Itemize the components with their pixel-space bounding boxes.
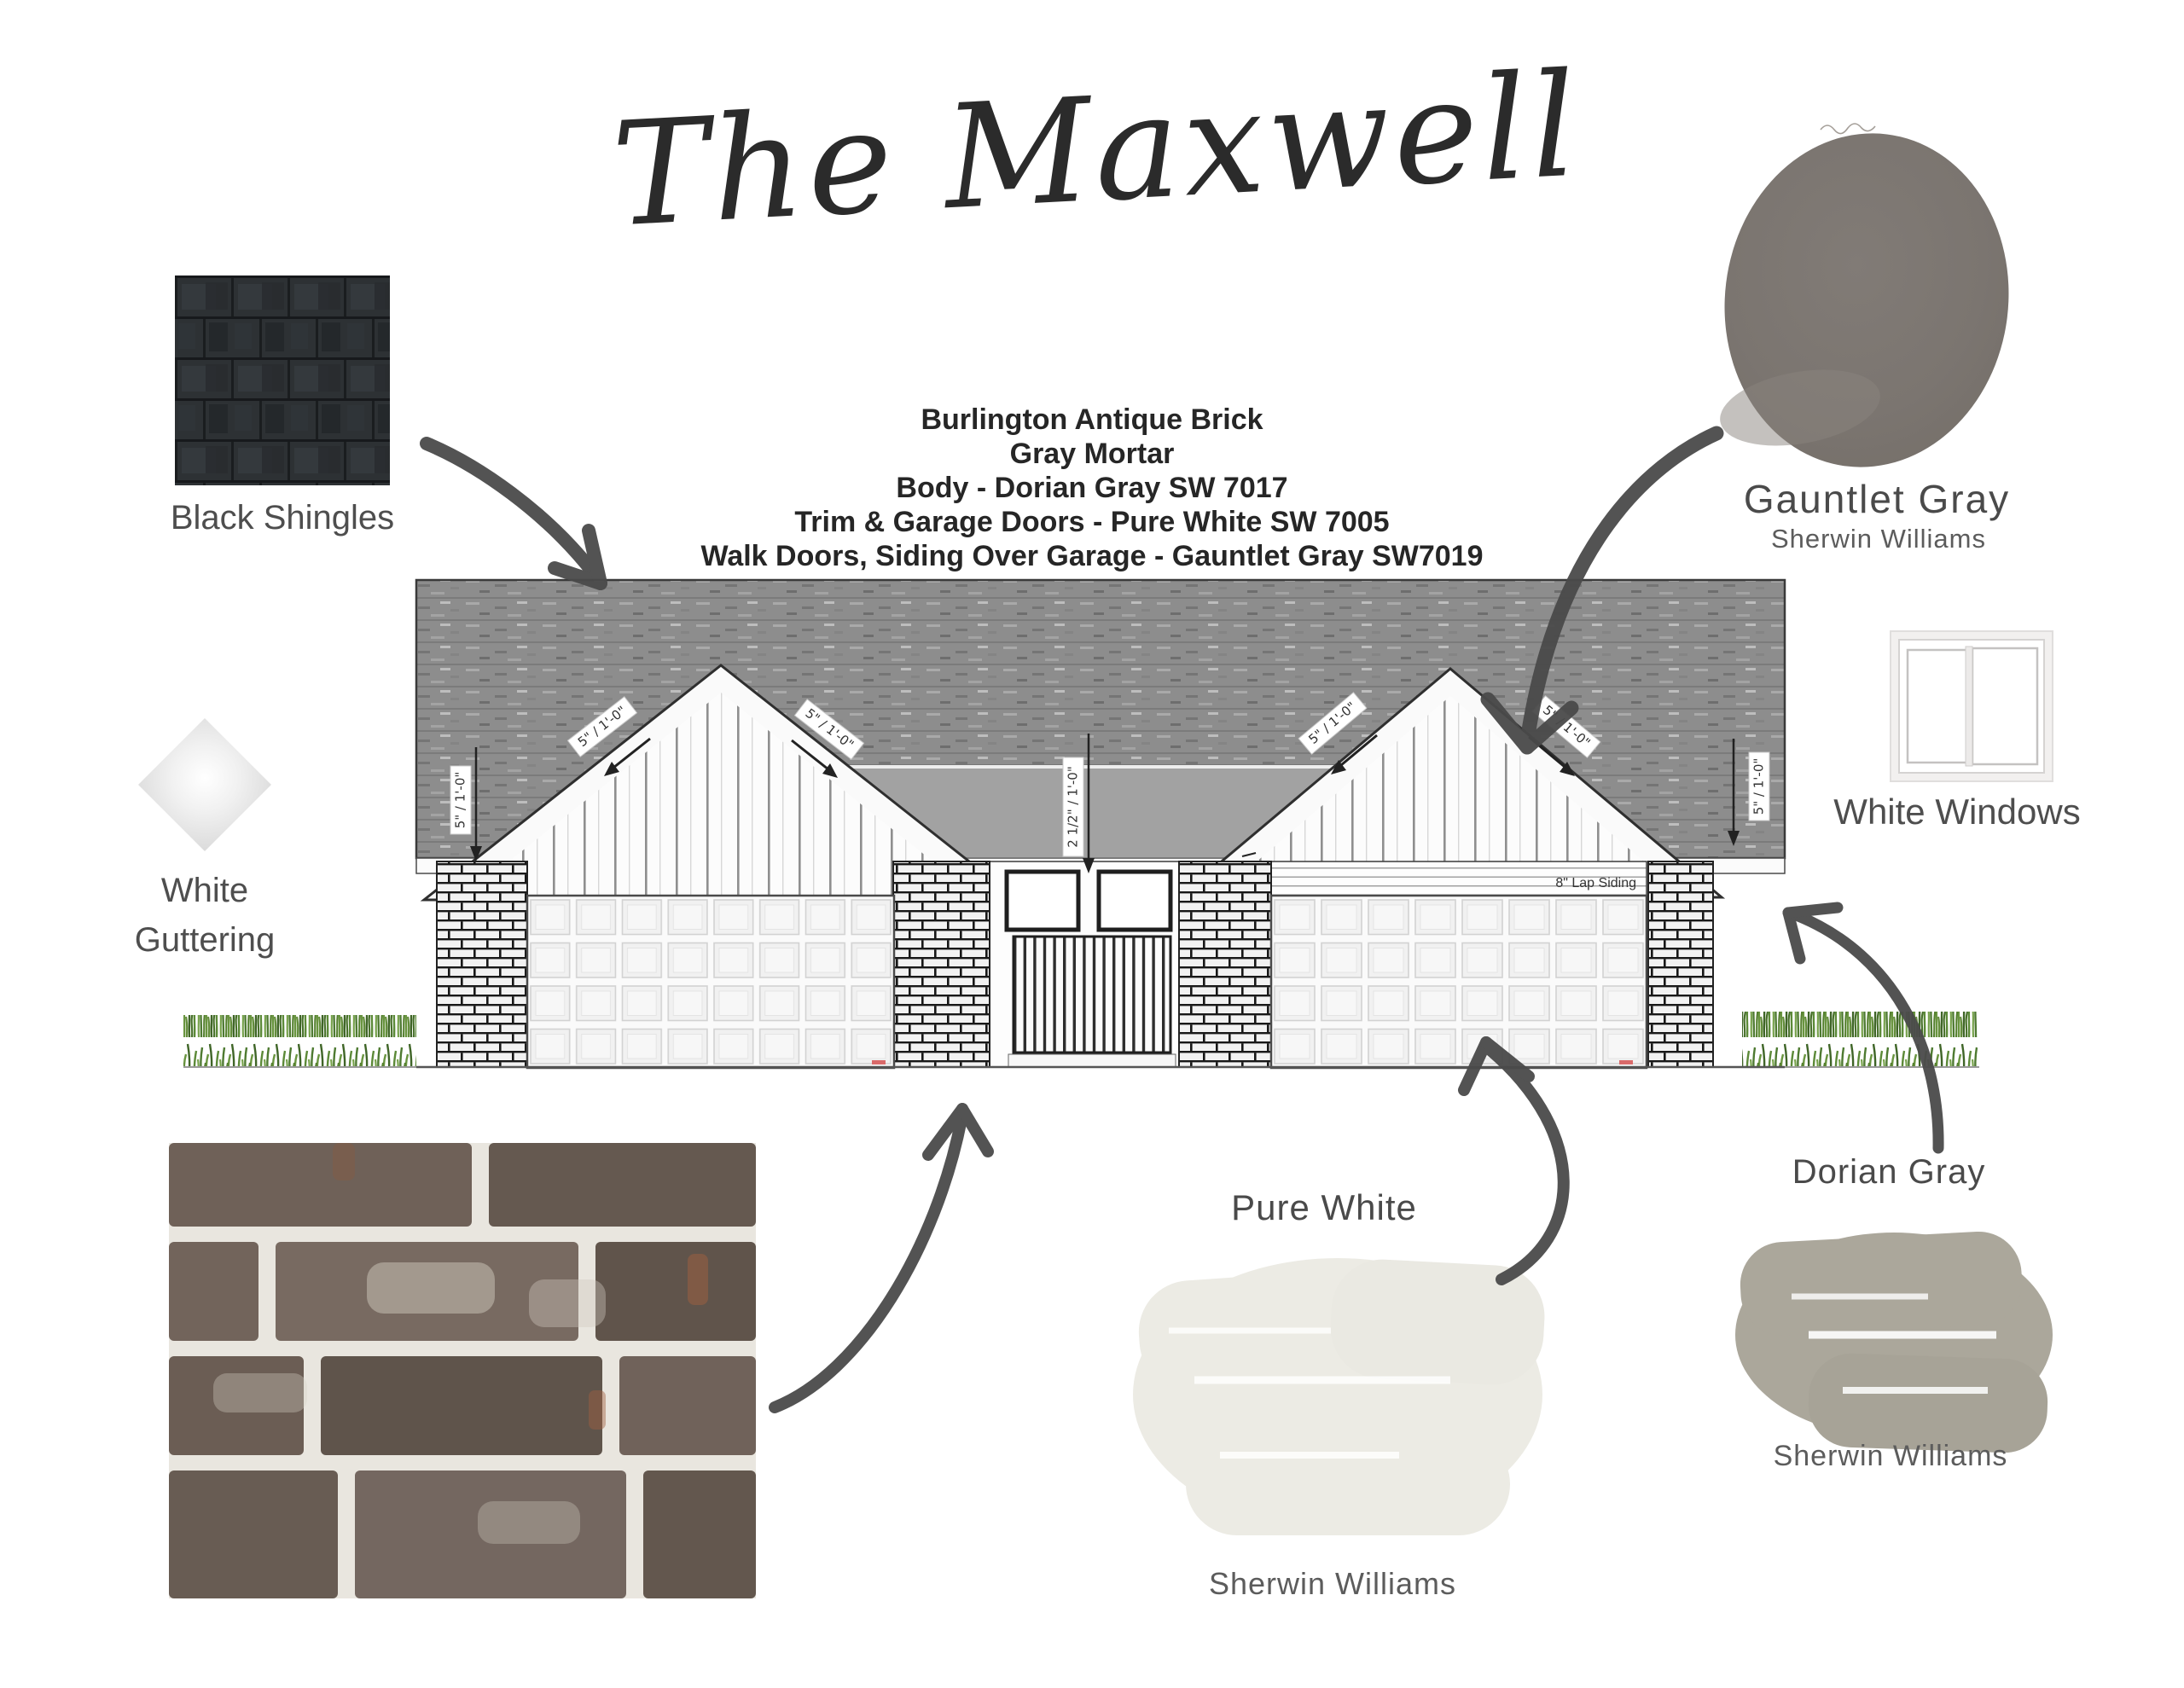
- black-shingles-label: Black Shingles: [171, 499, 394, 537]
- white-windows-swatch: [1891, 631, 2053, 781]
- arrow-brick-to-walk-gate: [775, 1109, 988, 1407]
- left-garage-door: [527, 896, 894, 1068]
- survey-mark-left: [872, 1060, 886, 1064]
- spec-line-body: Body - Dorian Gray SW 7017: [452, 471, 1732, 505]
- arrow-pure-white-to-garage-door: [1464, 1042, 1564, 1279]
- burlington-antique-brick-swatch: [169, 1143, 756, 1598]
- dorian-gray-name: Dorian Gray: [1792, 1153, 1986, 1192]
- gate-step: [1008, 1054, 1176, 1067]
- black-shingles-swatch: [175, 276, 390, 485]
- transom-window-right: [1099, 872, 1170, 930]
- gauntlet-gray-name: Gauntlet Gray: [1744, 476, 2010, 522]
- right-garage-door: [1271, 896, 1647, 1068]
- house-elevation-drawing: 8" Lap Siding 1'-6": [183, 580, 1979, 1068]
- white-guttering-label-line1: White: [161, 872, 248, 910]
- finish-schedule: Burlington Antique Brick Gray Mortar Bod…: [452, 403, 1732, 573]
- watermark-scribble: [1821, 124, 1875, 134]
- spec-line-doors: Walk Doors, Siding Over Garage - Gauntle…: [452, 539, 1732, 573]
- dorian-gray-brand: Sherwin Williams: [1774, 1440, 2008, 1473]
- spec-line-brick: Burlington Antique Brick: [452, 403, 1732, 437]
- pure-white-brand: Sherwin Williams: [1209, 1566, 1456, 1602]
- lap-siding-note: 8" Lap Siding: [1555, 876, 1636, 890]
- white-guttering-swatch: [138, 718, 271, 851]
- grass-left: [183, 1015, 416, 1067]
- gauntlet-gray-brand: Sherwin Williams: [1771, 524, 1986, 554]
- spec-line-mortar: Gray Mortar: [452, 437, 1732, 471]
- white-windows-label: White Windows: [1833, 792, 2080, 832]
- grass-right: [1742, 1012, 1978, 1067]
- survey-mark-right: [1619, 1060, 1633, 1064]
- mood-board-graphics: 8" Lap Siding 1'-6": [0, 0, 2184, 1688]
- pure-white-name: Pure White: [1231, 1187, 1417, 1228]
- white-guttering-label-line2: Guttering: [135, 921, 276, 960]
- svg-text:5" / 1'-0": 5" / 1'-0": [1751, 758, 1767, 815]
- svg-text:2 1/2" / 1'-0": 2 1/2" / 1'-0": [1066, 766, 1081, 847]
- dorian-gray-swatch: [1735, 1229, 2053, 1453]
- spec-line-trim: Trim & Garage Doors - Pure White SW 7005: [452, 505, 1732, 539]
- mood-board: 8" Lap Siding 1'-6": [0, 0, 2184, 1688]
- pure-white-swatch: [1133, 1257, 1547, 1535]
- gauntlet-gray-swatch: [1705, 117, 2027, 484]
- svg-text:5" / 1'-0": 5" / 1'-0": [453, 772, 468, 829]
- transom-window-left: [1007, 872, 1078, 930]
- walk-gate: [1014, 937, 1170, 1053]
